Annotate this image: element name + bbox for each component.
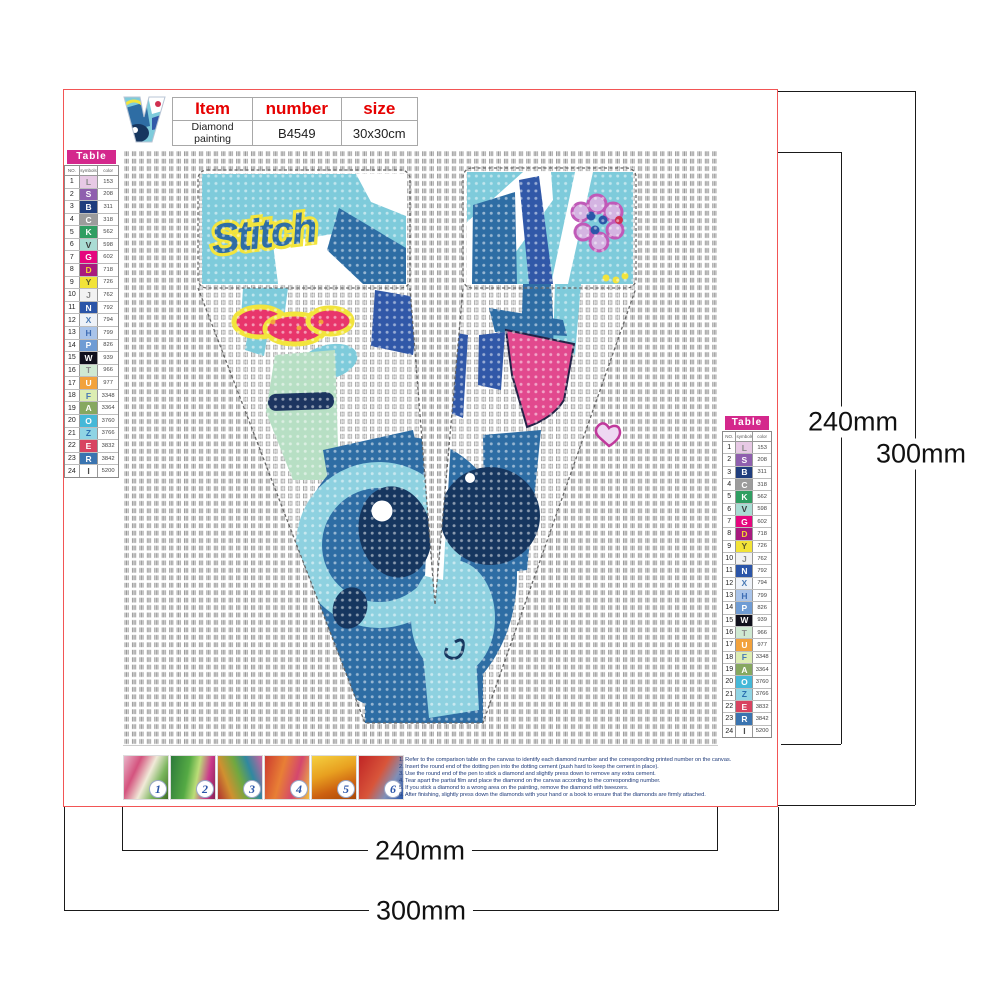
dim-line-bottom-240-right-tick [717, 807, 718, 851]
color-row-symbol: P [80, 340, 98, 352]
color-row-symbol: W [80, 352, 98, 364]
color-table-row: 14P826 [723, 602, 771, 614]
instruction-line: 2. Insert the round end of the dotting p… [399, 764, 731, 771]
color-row-number: 4 [723, 479, 736, 490]
color-row-code: 311 [98, 201, 118, 213]
color-row-number: 11 [723, 565, 736, 576]
color-table-row: 1L153 [723, 442, 771, 454]
color-row-number: 4 [65, 214, 80, 226]
color-table-row: 23R3842 [65, 453, 118, 466]
color-table-row: 19A3364 [65, 402, 118, 415]
item-header: Item [173, 98, 253, 121]
color-row-number: 9 [65, 277, 80, 289]
color-row-code: 977 [753, 639, 771, 650]
color-row-number: 13 [723, 590, 736, 601]
dim-line-right-240-bottom [781, 744, 841, 745]
step-photo-strip: 123456 [123, 755, 405, 800]
color-row-code: 3760 [753, 676, 771, 687]
step-photo-5: 5 [311, 755, 357, 800]
color-row-number: 18 [65, 390, 80, 402]
color-row-number: 10 [65, 289, 80, 301]
color-table-column-header: symbols [736, 432, 753, 441]
color-row-symbol: X [736, 578, 753, 589]
color-row-code: 318 [753, 479, 771, 490]
color-row-code: 598 [98, 239, 118, 251]
color-table-row: 13H799 [65, 327, 118, 340]
color-row-code: 602 [753, 516, 771, 527]
color-row-code: 977 [98, 377, 118, 389]
color-row-code: 5200 [98, 465, 118, 477]
color-row-symbol: Z [80, 428, 98, 440]
color-table-row: 17U977 [65, 377, 118, 390]
color-row-number: 13 [65, 327, 80, 339]
color-row-code: 726 [98, 277, 118, 289]
color-row-code: 3364 [753, 664, 771, 675]
color-row-symbol: F [80, 390, 98, 402]
color-row-symbol: Y [80, 277, 98, 289]
color-row-number: 8 [65, 264, 80, 276]
color-table-row: 18F3348 [723, 652, 771, 664]
color-row-code: 794 [98, 314, 118, 326]
color-row-number: 3 [65, 201, 80, 213]
color-row-symbol: R [736, 713, 753, 724]
color-row-symbol: K [736, 491, 753, 502]
color-row-symbol: C [736, 479, 753, 490]
color-row-number: 1 [65, 176, 80, 188]
step-photo-3: 3 [217, 755, 263, 800]
color-row-code: 799 [98, 327, 118, 339]
color-table-row: 15W939 [723, 615, 771, 627]
dim-label-right-300: 300mm [869, 439, 973, 470]
color-row-symbol: L [80, 176, 98, 188]
color-table-row: 16T966 [723, 627, 771, 639]
color-row-symbol: V [80, 239, 98, 251]
step-photo-6: 6 [358, 755, 404, 800]
dim-label-right-240: 240mm [801, 407, 905, 438]
color-table-row: 13H799 [723, 590, 771, 602]
color-row-number: 3 [723, 467, 736, 478]
color-row-symbol: N [736, 565, 753, 576]
dim-line-right-240-vertical [841, 152, 842, 744]
color-row-number: 5 [723, 491, 736, 502]
color-row-code: 311 [753, 467, 771, 478]
color-table-row: 24I5200 [65, 465, 118, 477]
color-row-symbol: H [736, 590, 753, 601]
color-table-row: 6V598 [723, 504, 771, 516]
color-row-symbol: B [80, 201, 98, 213]
dim-label-bottom-300: 300mm [369, 896, 473, 927]
color-row-code: 602 [98, 251, 118, 263]
instruction-line: 1. Refer to the comparison table on the … [399, 757, 731, 764]
color-row-symbol: R [80, 453, 98, 465]
color-row-code: 3842 [98, 453, 118, 465]
color-table-row: 12X794 [723, 578, 771, 590]
color-row-code: 826 [753, 602, 771, 613]
step-number-badge: 1 [149, 780, 167, 798]
step-photo-4: 4 [264, 755, 310, 800]
color-row-symbol: H [80, 327, 98, 339]
color-row-symbol: L [736, 442, 753, 453]
color-row-number: 7 [65, 251, 80, 263]
color-row-code: 939 [753, 615, 771, 626]
color-table-row: 14P826 [65, 340, 118, 353]
color-table-row: 20O3760 [723, 676, 771, 688]
color-table-row: 17U977 [723, 639, 771, 651]
instruction-line: 6. After finishing, slightly press down … [399, 792, 731, 799]
color-row-code: 208 [753, 454, 771, 465]
color-row-number: 16 [723, 627, 736, 638]
color-row-code: 794 [753, 578, 771, 589]
color-table-row: 18F3348 [65, 390, 118, 403]
dim-label-bottom-240: 240mm [368, 836, 472, 867]
color-table-row: 10J762 [723, 553, 771, 565]
color-row-number: 8 [723, 528, 736, 539]
instruction-line: 4. Tear apart the partial film and place… [399, 778, 731, 785]
color-row-code: 562 [98, 226, 118, 238]
step-number-badge: 5 [337, 780, 355, 798]
item-size: 30x30cm [341, 121, 417, 146]
color-table-row: 7G602 [65, 251, 118, 264]
color-row-symbol: W [736, 615, 753, 626]
instruction-text-block: 1. Refer to the comparison table on the … [399, 757, 731, 800]
color-row-symbol: X [80, 314, 98, 326]
color-row-number: 10 [723, 553, 736, 564]
color-table-row: 21Z3766 [723, 689, 771, 701]
color-table-row: 8D718 [723, 528, 771, 540]
color-row-symbol: U [736, 639, 753, 650]
color-table-column-header: color [753, 432, 771, 441]
color-table-row: 21Z3766 [65, 428, 118, 441]
color-row-number: 6 [723, 504, 736, 515]
color-row-symbol: S [80, 189, 98, 201]
color-table-title: Table [725, 416, 769, 430]
color-row-symbol: A [736, 664, 753, 675]
color-row-symbol: O [80, 415, 98, 427]
color-row-symbol: G [736, 516, 753, 527]
color-table-row: 23R3842 [723, 713, 771, 725]
color-row-number: 22 [65, 440, 80, 452]
letter-v-logo [122, 96, 166, 143]
dim-line-bottom-240-left-tick [122, 807, 123, 851]
color-row-number: 15 [65, 352, 80, 364]
color-table-row: 9Y726 [723, 541, 771, 553]
dim-line-bottom-300-right-tick [778, 807, 779, 911]
dim-line-bottom-300-left-tick [64, 807, 65, 911]
letter-v-logo-art [122, 96, 166, 143]
color-table-title: Table [67, 150, 116, 164]
color-row-symbol: F [736, 652, 753, 663]
color-table-row: 11N792 [723, 565, 771, 577]
color-table-column-header: symbols [80, 166, 98, 175]
product-name: Diamond painting [173, 121, 253, 146]
color-row-symbol: B [736, 467, 753, 478]
color-table-column-header: NO. [65, 166, 80, 175]
color-table-row: 19A3364 [723, 664, 771, 676]
color-row-code: 562 [753, 491, 771, 502]
diamond-painting-product-sheet: Item number size Diamond painting B4549 … [0, 0, 1001, 1001]
color-table-row: 11N792 [65, 302, 118, 315]
color-table-row: 20O3760 [65, 415, 118, 428]
dim-line-right-300-top [778, 91, 915, 92]
color-row-number: 2 [65, 189, 80, 201]
color-table-row: 4C318 [65, 214, 118, 227]
color-table-row: 3B311 [65, 201, 118, 214]
color-row-number: 16 [65, 365, 80, 377]
color-row-symbol: Y [736, 541, 753, 552]
color-row-code: 153 [753, 442, 771, 453]
color-table-column-header: color [98, 166, 118, 175]
color-row-number: 19 [723, 664, 736, 675]
color-table-row: 15W939 [65, 352, 118, 365]
size-header: size [341, 98, 417, 121]
color-row-code: 718 [98, 264, 118, 276]
color-row-number: 14 [65, 340, 80, 352]
color-row-symbol: J [80, 289, 98, 301]
color-row-code: 762 [98, 289, 118, 301]
color-row-code: 5200 [753, 726, 771, 737]
color-row-symbol: T [80, 365, 98, 377]
step-photo-2: 2 [170, 755, 216, 800]
step-number-badge: 2 [196, 780, 214, 798]
color-row-code: 792 [98, 302, 118, 314]
color-row-number: 17 [723, 639, 736, 650]
color-table-row: 1L153 [65, 176, 118, 189]
item-info-table: Item number size Diamond painting B4549 … [172, 97, 418, 146]
color-row-symbol: D [80, 264, 98, 276]
step-number-badge: 4 [290, 780, 308, 798]
color-row-symbol: D [736, 528, 753, 539]
color-table-row: 24I5200 [723, 726, 771, 737]
dim-line-right-300-bottom [778, 805, 915, 806]
color-row-code: 153 [98, 176, 118, 188]
color-row-number: 22 [723, 701, 736, 712]
color-table-row: 8D718 [65, 264, 118, 277]
color-row-number: 18 [723, 652, 736, 663]
dim-line-right-240-top [778, 152, 841, 153]
color-row-number: 20 [723, 676, 736, 687]
color-row-code: 966 [98, 365, 118, 377]
color-row-code: 3348 [98, 390, 118, 402]
color-row-code: 966 [753, 627, 771, 638]
color-legend-table-right: TableNO.symbolscolor1L1532S2083B3114C318… [722, 416, 772, 738]
color-row-symbol: A [80, 402, 98, 414]
color-row-number: 24 [65, 465, 80, 477]
color-table-row: 4C318 [723, 479, 771, 491]
color-row-number: 6 [65, 239, 80, 251]
color-table-row: 22E3832 [723, 701, 771, 713]
color-row-number: 20 [65, 415, 80, 427]
color-row-code: 318 [98, 214, 118, 226]
color-row-number: 2 [723, 454, 736, 465]
color-table-row: 6V598 [65, 239, 118, 252]
color-row-code: 3766 [753, 689, 771, 700]
color-table-row: 5K562 [65, 226, 118, 239]
color-row-code: 3766 [98, 428, 118, 440]
color-row-number: 1 [723, 442, 736, 453]
color-row-symbol: V [736, 504, 753, 515]
color-row-number: 5 [65, 226, 80, 238]
color-table-row: 7G602 [723, 516, 771, 528]
color-row-symbol: Z [736, 689, 753, 700]
color-row-number: 12 [723, 578, 736, 589]
letter-v-artwork: Stitch [123, 150, 718, 745]
color-row-symbol: P [736, 602, 753, 613]
color-table-row: 16T966 [65, 365, 118, 378]
color-row-code: 3832 [98, 440, 118, 452]
color-row-number: 15 [723, 615, 736, 626]
color-legend-table-left: TableNO.symbolscolor1L1532S2083B3114C318… [64, 150, 119, 478]
color-row-symbol: C [80, 214, 98, 226]
color-row-number: 11 [65, 302, 80, 314]
color-table-row: 2S208 [723, 454, 771, 466]
color-row-number: 21 [65, 428, 80, 440]
color-row-symbol: I [80, 465, 98, 477]
color-row-number: 24 [723, 726, 736, 737]
instruction-line: 5. If you stick a diamond to a wrong are… [399, 785, 731, 792]
color-table-row: 22E3832 [65, 440, 118, 453]
color-row-number: 23 [65, 453, 80, 465]
color-row-number: 12 [65, 314, 80, 326]
color-row-symbol: I [736, 726, 753, 737]
color-row-code: 3760 [98, 415, 118, 427]
color-table-row: 10J762 [65, 289, 118, 302]
color-row-code: 718 [753, 528, 771, 539]
canvas-bottom-edge [123, 745, 718, 746]
color-row-number: 23 [723, 713, 736, 724]
color-row-number: 9 [723, 541, 736, 552]
color-row-symbol: E [80, 440, 98, 452]
step-photo-1: 1 [123, 755, 169, 800]
color-row-code: 799 [753, 590, 771, 601]
color-row-code: 826 [98, 340, 118, 352]
color-table-row: 5K562 [723, 491, 771, 503]
color-row-code: 792 [753, 565, 771, 576]
color-table-column-header: NO. [723, 432, 736, 441]
color-row-code: 3364 [98, 402, 118, 414]
color-row-symbol: K [80, 226, 98, 238]
color-row-number: 17 [65, 377, 80, 389]
color-row-code: 3832 [753, 701, 771, 712]
color-row-number: 19 [65, 402, 80, 414]
instruction-line: 3. Use the round end of the pen to stick… [399, 771, 731, 778]
color-row-symbol: G [80, 251, 98, 263]
color-row-number: 7 [723, 516, 736, 527]
item-number: B4549 [253, 121, 341, 146]
color-row-code: 939 [98, 352, 118, 364]
color-table-row: 12X794 [65, 314, 118, 327]
printed-canvas: Stitch [123, 150, 718, 745]
color-row-code: 598 [753, 504, 771, 515]
color-row-symbol: T [736, 627, 753, 638]
color-table-row: 9Y726 [65, 277, 118, 290]
color-row-code: 762 [753, 553, 771, 564]
color-row-code: 726 [753, 541, 771, 552]
color-row-code: 3348 [753, 652, 771, 663]
color-row-symbol: J [736, 553, 753, 564]
color-table-row: 3B311 [723, 467, 771, 479]
step-number-badge: 3 [243, 780, 261, 798]
color-row-code: 208 [98, 189, 118, 201]
color-row-number: 14 [723, 602, 736, 613]
color-row-symbol: O [736, 676, 753, 687]
color-table-row: 2S208 [65, 189, 118, 202]
color-row-symbol: U [80, 377, 98, 389]
number-header: number [253, 98, 341, 121]
color-row-number: 21 [723, 689, 736, 700]
color-row-symbol: N [80, 302, 98, 314]
color-row-symbol: S [736, 454, 753, 465]
color-row-symbol: E [736, 701, 753, 712]
color-row-code: 3842 [753, 713, 771, 724]
